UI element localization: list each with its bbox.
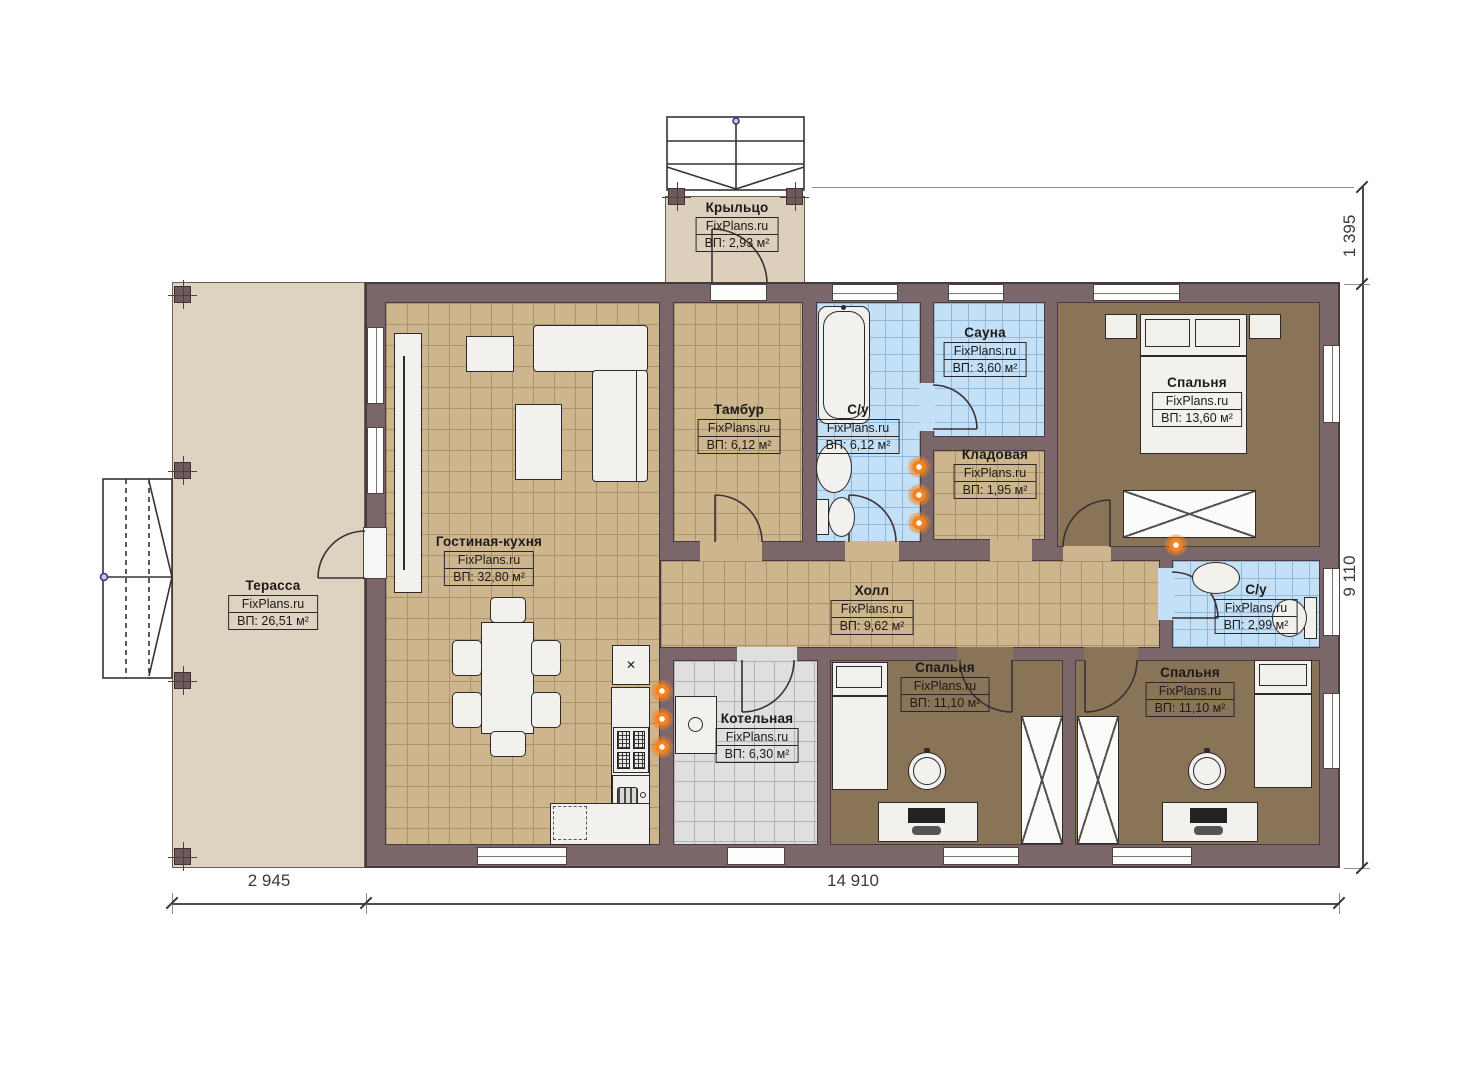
watermark-text: FixPlans.ru — [717, 729, 798, 746]
room-label-bathroom: С/у FixPlans.ru ВП: 6,12 м² — [817, 402, 900, 454]
room-name: Крыльцо — [696, 200, 779, 215]
room-name: Спальня — [1152, 375, 1242, 390]
door-opening — [737, 647, 797, 661]
room-area: ВП: 26,51 м² — [229, 613, 317, 629]
door-opening — [919, 383, 935, 431]
sofa — [592, 370, 648, 482]
dimension-guide — [1344, 868, 1370, 869]
watermark-box: FixPlans.ru ВП: 32,80 м² — [444, 551, 534, 586]
room-area: ВП: 11,10 м² — [1147, 700, 1234, 716]
window — [1112, 847, 1192, 865]
room-area: ВП: 6,30 м² — [717, 746, 798, 762]
door-opening — [990, 539, 1032, 561]
watermark-box: FixPlans.ru ВП: 13,60 м² — [1152, 392, 1242, 427]
room-label-sauna: Сауна FixPlans.ru ВП: 3,60 м² — [944, 325, 1027, 377]
room-label-boiler: Котельная FixPlans.ru ВП: 6,30 м² — [716, 711, 799, 763]
column-post — [174, 672, 191, 689]
room-area: ВП: 32,80 м² — [445, 569, 533, 585]
wardrobe — [1123, 490, 1256, 538]
kitchen-counter — [550, 803, 650, 845]
watermark-text: FixPlans.ru — [445, 552, 533, 569]
watermark-box: FixPlans.ru ВП: 2,93 м² — [696, 217, 779, 252]
door-opening — [1158, 568, 1174, 620]
door-opening — [1063, 546, 1111, 561]
watermark-text: FixPlans.ru — [1153, 393, 1241, 410]
chair — [452, 692, 482, 728]
window — [948, 284, 1004, 301]
watermark-box: FixPlans.ru ВП: 3,60 м² — [944, 342, 1027, 377]
room-name: Холл — [831, 583, 914, 598]
room-name: Спальня — [1146, 665, 1235, 680]
window — [1323, 345, 1340, 423]
radiator-icon — [906, 484, 932, 506]
room-name: С/у — [1215, 582, 1298, 597]
chair — [490, 731, 526, 757]
wardrobe — [1077, 716, 1119, 844]
fridge: ✕ — [612, 645, 650, 685]
window — [1323, 568, 1340, 636]
wardrobe — [1021, 716, 1063, 844]
porch-door — [710, 284, 767, 301]
desk — [878, 802, 978, 842]
watermark-text: FixPlans.ru — [945, 343, 1026, 360]
boiler-unit — [675, 696, 717, 754]
dimension-porch-depth: 1 395 — [1340, 215, 1360, 258]
door-opening — [845, 541, 899, 561]
room-name: Сауна — [944, 325, 1027, 340]
column-post — [786, 188, 803, 205]
single-bed — [1254, 660, 1312, 788]
desk — [1162, 802, 1258, 842]
door-opening — [957, 647, 1013, 661]
dimension-line-right — [1362, 187, 1364, 868]
watermark-text: FixPlans.ru — [229, 596, 317, 613]
radiator-icon — [906, 512, 932, 534]
chair — [531, 692, 561, 728]
chair — [531, 640, 561, 676]
round-chair — [908, 752, 946, 790]
stove — [613, 727, 649, 773]
watermark-text: FixPlans.ru — [955, 465, 1036, 482]
watermark-text: FixPlans.ru — [832, 601, 913, 618]
room-label-storage: Кладовая FixPlans.ru ВП: 1,95 м² — [954, 447, 1037, 499]
room-name: Спальня — [901, 660, 990, 675]
dining-table — [481, 622, 534, 734]
room-label-living: Гостиная-кухня FixPlans.ru ВП: 32,80 м² — [436, 534, 542, 586]
watermark-box: FixPlans.ru ВП: 1,95 м² — [954, 464, 1037, 499]
dimension-terrace-width: 2 945 — [248, 871, 291, 891]
radiator-icon — [649, 708, 675, 730]
radiator-icon — [906, 456, 932, 478]
column-post — [174, 848, 191, 865]
watermark-box: FixPlans.ru ВП: 9,62 м² — [831, 600, 914, 635]
tv-panel — [394, 333, 422, 593]
radiator-icon — [1163, 534, 1189, 556]
window — [367, 327, 384, 404]
room-area: ВП: 6,12 м² — [699, 437, 780, 453]
room-area: ВП: 13,60 м² — [1153, 410, 1241, 426]
coffee-table — [515, 404, 562, 480]
floor-plan: ✕ — [0, 0, 1473, 1080]
room-area: ВП: 2,93 м² — [697, 235, 778, 251]
watermark-text: FixPlans.ru — [1147, 683, 1234, 700]
room-label-terrace: Терасса FixPlans.ru ВП: 26,51 м² — [228, 578, 318, 630]
watermark-box: FixPlans.ru ВП: 26,51 м² — [228, 595, 318, 630]
door-opening — [1084, 647, 1138, 661]
watermark-text: FixPlans.ru — [1216, 600, 1297, 617]
room-name: Тамбур — [698, 402, 781, 417]
door-opening — [700, 541, 762, 561]
room-label-bedroom-left: Спальня FixPlans.ru ВП: 11,10 м² — [901, 660, 990, 712]
room-name: Котельная — [716, 711, 799, 726]
chair — [490, 597, 526, 623]
radiator-icon — [649, 680, 675, 702]
dimension-house-depth: 9 110 — [1340, 555, 1360, 596]
wall-shelf — [466, 336, 514, 372]
room-area: ВП: 3,60 м² — [945, 360, 1026, 376]
window — [1323, 693, 1340, 769]
chair — [452, 640, 482, 676]
watermark-text: FixPlans.ru — [902, 678, 989, 695]
window — [367, 427, 384, 494]
round-chair — [1188, 752, 1226, 790]
watermark-box: FixPlans.ru ВП: 2,99 м² — [1215, 599, 1298, 634]
watermark-text: FixPlans.ru — [697, 218, 778, 235]
window — [832, 284, 898, 301]
terrace-door-opening — [363, 527, 387, 579]
room-name: С/у — [817, 402, 900, 417]
watermark-box: FixPlans.ru ВП: 11,10 м² — [901, 677, 990, 712]
dimension-line-bottom — [172, 903, 1340, 905]
radiator-icon — [649, 736, 675, 758]
room-area: ВП: 11,10 м² — [902, 695, 989, 711]
single-bed — [832, 662, 888, 790]
watermark-text: FixPlans.ru — [818, 420, 899, 437]
window — [1093, 284, 1180, 301]
column-post — [668, 188, 685, 205]
room-label-porch: Крыльцо FixPlans.ru ВП: 2,93 м² — [696, 200, 779, 252]
room-label-hall: Холл FixPlans.ru ВП: 9,62 м² — [831, 583, 914, 635]
room-area: ВП: 2,99 м² — [1216, 617, 1297, 633]
sofa — [533, 325, 648, 372]
room-label-bathroom2: С/у FixPlans.ru ВП: 2,99 м² — [1215, 582, 1298, 634]
watermark-box: FixPlans.ru ВП: 6,12 м² — [698, 419, 781, 454]
window — [477, 847, 567, 865]
room-label-vestibule: Тамбур FixPlans.ru ВП: 6,12 м² — [698, 402, 781, 454]
watermark-text: FixPlans.ru — [699, 420, 780, 437]
watermark-box: FixPlans.ru ВП: 11,10 м² — [1146, 682, 1235, 717]
terrace-deck — [172, 282, 365, 868]
column-post — [174, 462, 191, 479]
room-name: Кладовая — [954, 447, 1037, 462]
boiler-door — [727, 847, 785, 865]
room-area: ВП: 1,95 м² — [955, 482, 1036, 498]
dimension-guide — [1344, 284, 1370, 285]
room-area: ВП: 9,62 м² — [832, 618, 913, 634]
room-name: Гостиная-кухня — [436, 534, 542, 549]
dimension-guide — [812, 187, 1354, 188]
watermark-box: FixPlans.ru ВП: 6,12 м² — [817, 419, 900, 454]
room-area: ВП: 6,12 м² — [818, 437, 899, 453]
room-label-bedroom-right: Спальня FixPlans.ru ВП: 11,10 м² — [1146, 665, 1235, 717]
nightstand — [1249, 314, 1281, 339]
room-name: Терасса — [228, 578, 318, 593]
dimension-house-width: 14 910 — [827, 871, 879, 891]
nightstand — [1105, 314, 1137, 339]
room-label-master-bedroom: Спальня FixPlans.ru ВП: 13,60 м² — [1152, 375, 1242, 427]
watermark-box: FixPlans.ru ВП: 6,30 м² — [716, 728, 799, 763]
window — [943, 847, 1019, 865]
toilet — [816, 495, 856, 539]
column-post — [174, 286, 191, 303]
